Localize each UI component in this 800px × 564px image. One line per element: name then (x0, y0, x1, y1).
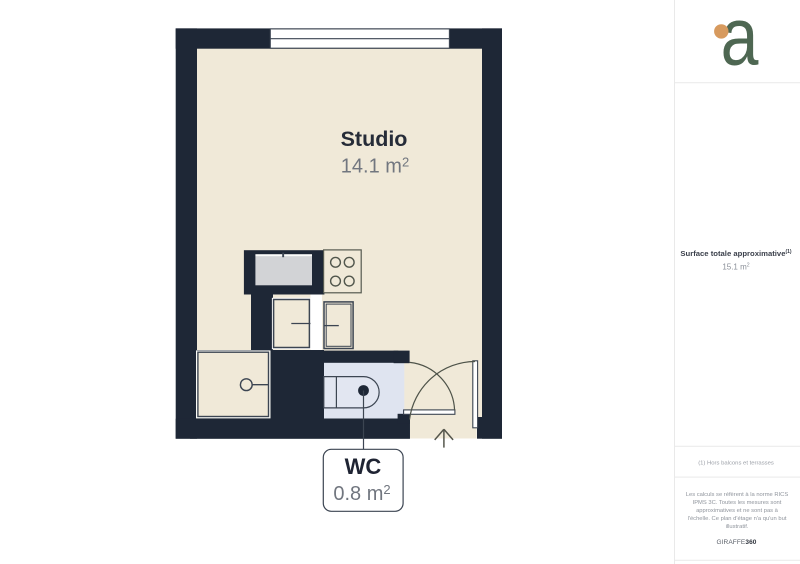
svg-text:l'échelle. Ce plan d'étage n'a: l'échelle. Ce plan d'étage n'a qu'un but (688, 516, 787, 522)
svg-text:approximatives et ne sont pas: approximatives et ne sont pas à (696, 508, 779, 514)
svg-text:a: a (721, 0, 759, 82)
svg-text:(1) Hors balcons et terrasses: (1) Hors balcons et terrasses (698, 460, 774, 466)
svg-text:illustratif.: illustratif. (726, 524, 749, 530)
svg-text:Studio: Studio (341, 127, 408, 151)
svg-text:Les calculs se réfèrent à la n: Les calculs se réfèrent à la norme RICS (686, 492, 789, 498)
svg-text:Surface totale approximative(1: Surface totale approximative(1) (680, 249, 792, 258)
svg-text:14.1 m2: 14.1 m2 (341, 155, 409, 178)
svg-text:IPMS 3C. Toutes les mesures so: IPMS 3C. Toutes les mesures sont (693, 500, 782, 506)
svg-text:GIRAFFE360: GIRAFFE360 (716, 539, 756, 546)
svg-text:WC: WC (345, 454, 382, 479)
svg-text:15.1 m2: 15.1 m2 (722, 263, 749, 272)
svg-text:0.8 m2: 0.8 m2 (333, 482, 390, 505)
